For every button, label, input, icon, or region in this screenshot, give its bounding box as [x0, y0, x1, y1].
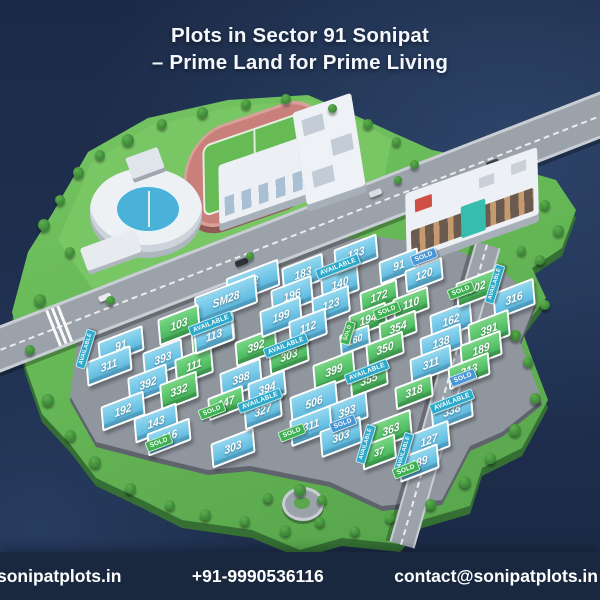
available-tag: AVAILABLE	[355, 423, 377, 465]
sold-tag: SOLD	[340, 320, 357, 346]
email-text: contact@sonipatplots.in	[394, 566, 598, 587]
sold-tag: SOLD	[409, 247, 438, 267]
sold-tag: SOLD	[372, 301, 401, 321]
sold-tag: SOLD	[446, 281, 475, 301]
sold-tag: SOLD	[144, 433, 173, 453]
available-tag: AVAILABLE	[75, 328, 97, 370]
promo-image: 12SM281031739131139311139233219214311630…	[0, 0, 600, 600]
phone-text: +91-9990536116	[192, 566, 324, 587]
available-tag: AVAILABLE	[236, 387, 283, 414]
tag-layer: AVAILABLEAVAILABLESOLDAVAILABLEAVAILABLE…	[0, 0, 600, 600]
title-block: Plots in Sector 91 Sonipat – Prime Land …	[0, 22, 600, 76]
available-tag: AVAILABLE	[187, 310, 234, 337]
contact-bar: sonipatplots.in +91-9990536116 contact@s…	[0, 552, 600, 600]
title-line-1: Plots in Sector 91 Sonipat	[0, 22, 600, 49]
sold-tag: SOLD	[277, 423, 306, 443]
available-tag: AVAILABLE	[428, 388, 475, 415]
sold-tag: SOLD	[197, 401, 226, 421]
available-tag: AVAILABLE	[262, 332, 309, 359]
title-line-2: – Prime Land for Prime Living	[0, 49, 600, 76]
sold-tag: SOLD	[448, 368, 477, 388]
available-tag: AVAILABLE	[314, 253, 361, 280]
sold-tag: SOLD	[328, 414, 357, 434]
available-tag: AVAILABLE	[484, 263, 506, 305]
available-tag: AVAILABLE	[343, 358, 390, 385]
website-text: sonipatplots.in	[0, 566, 121, 587]
